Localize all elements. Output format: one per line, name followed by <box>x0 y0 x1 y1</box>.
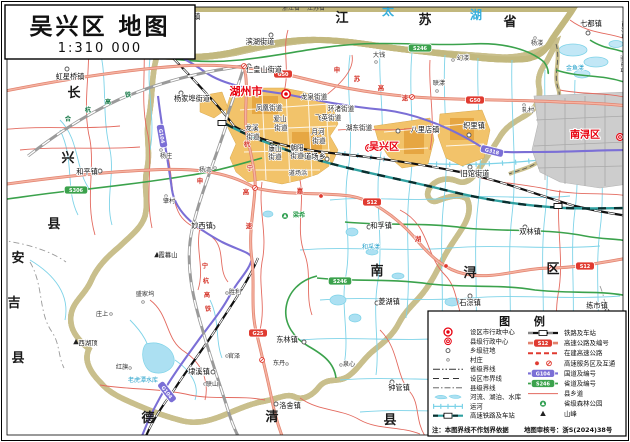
map-label-环渚街道: 环渚街道 <box>328 104 355 113</box>
map-label-官泽: 官泽 <box>228 352 240 360</box>
map-label-虹星桥镇: 虹星桥镇 <box>56 72 85 81</box>
map-label-街道: 街道 <box>274 123 288 132</box>
marker-village <box>110 313 113 316</box>
map-label-联漾: 联漾 <box>433 79 445 87</box>
road-badge-S12: S12 <box>363 198 382 206</box>
map-label-龙泉街道: 龙泉街道 <box>301 92 328 101</box>
map-label-石淙镇: 石淙镇 <box>459 298 481 307</box>
marker-interchange <box>260 358 265 363</box>
marker-town <box>274 402 278 406</box>
road-badge-G25: G25 <box>249 329 268 337</box>
marker-town <box>211 370 215 374</box>
map-label-省: 省 <box>502 14 516 30</box>
map-label-盛家坞: 盛家坞 <box>136 290 155 298</box>
legend-approval: 地图审核号：浙S(2024)38号 <box>524 425 613 434</box>
map-label-飞英街道: 飞英街道 <box>315 113 342 122</box>
map-label-八里店镇: 八里店镇 <box>411 125 440 134</box>
marker-village <box>129 367 132 370</box>
road-badge-S12: S12 <box>576 262 595 270</box>
map-label-杨溇: 杨溇 <box>531 39 543 47</box>
map-label-浔: 浔 <box>463 265 476 281</box>
map-label-清: 清 <box>265 409 278 425</box>
marker-interchange <box>253 186 258 191</box>
map-label-德: 德 <box>141 410 154 426</box>
marker-village <box>160 149 163 152</box>
map-label-西湖顶: 西湖顶 <box>78 338 98 347</box>
map-label-织里镇: 织里镇 <box>463 121 485 130</box>
map-label-速: 速 <box>402 93 409 102</box>
legend-label-county-border: 县级界线 <box>470 383 496 392</box>
legend-title: 图 例 <box>499 314 555 328</box>
map-label-申: 申 <box>197 176 203 185</box>
map-label-杭: 杭 <box>244 139 251 148</box>
legend-label-hwy-badge: 高速公路及编号 <box>564 338 609 347</box>
marker-village <box>523 104 526 107</box>
marker-city <box>282 90 290 98</box>
map-label-红旗: 红旗 <box>116 363 128 371</box>
map-title: 吴兴区 地图 <box>29 14 170 40</box>
map-label-湖: 湖 <box>415 234 422 243</box>
map-label-苏: 苏 <box>354 74 361 83</box>
map-label-苏: 苏 <box>418 12 431 28</box>
map-label-南: 南 <box>370 263 383 279</box>
map-label-街道: 街道 <box>268 152 282 161</box>
legend-label-service-ic: 高速服务区及互通 <box>564 358 616 367</box>
map-label-金鱼漾: 金鱼漾 <box>566 64 584 72</box>
map-label-长: 长 <box>67 85 81 101</box>
map-label-凤凰街道: 凤凰街道 <box>256 103 283 112</box>
legend-label-county-road: 县乡道 <box>564 389 584 398</box>
marker-town <box>586 31 590 35</box>
map-label-幻溇: 幻溇 <box>457 54 469 62</box>
map-label-杭: 杭 <box>203 277 210 285</box>
map-label-宁: 宁 <box>202 262 208 270</box>
map-label-湖: 湖 <box>470 7 482 22</box>
marker-town <box>65 67 69 71</box>
legend-sym-s-badge: S246 <box>528 380 558 388</box>
map-label-仁皇山街道: 仁皇山街道 <box>246 65 282 74</box>
marker-village <box>534 37 537 40</box>
marker-village <box>165 195 168 198</box>
map-label-联山: 联山 <box>206 380 218 388</box>
svg-text:G25: G25 <box>252 331 264 337</box>
map-label-杨家埠街道: 杨家埠街道 <box>174 94 210 103</box>
map-label-安: 安 <box>11 250 24 266</box>
marker-county <box>617 134 624 141</box>
map-scale: 1:310 000 <box>58 41 142 56</box>
map-label-道场浜: 道场浜 <box>289 169 308 177</box>
map-label-街道: 街道 <box>312 136 326 145</box>
svg-text:S12: S12 <box>580 264 591 270</box>
map-label-庄上: 庄上 <box>96 310 108 318</box>
map-label-朝阳: 朝阳 <box>290 143 303 152</box>
marker-village <box>142 301 145 304</box>
map-label-速: 速 <box>246 221 253 230</box>
map-label-练市镇: 练市镇 <box>586 301 608 310</box>
map-label-高: 高 <box>243 187 250 196</box>
map-label-铁: 铁 <box>205 305 212 313</box>
map-label-康山: 康山 <box>268 144 281 153</box>
marker-village <box>214 167 217 170</box>
legend-label-peak: 山峰 <box>564 409 577 418</box>
map-label-东林镇: 东林镇 <box>276 335 298 344</box>
map-label-嘉: 嘉 <box>296 186 304 195</box>
svg-text:S12: S12 <box>538 341 549 347</box>
road-badge-S246: S246 <box>408 44 431 52</box>
map-label-埭溪镇: 埭溪镇 <box>188 367 210 376</box>
map-label-爱山: 爱山 <box>273 114 286 123</box>
legend-label-canal: 运河 <box>470 402 483 410</box>
svg-text:G50: G50 <box>469 98 481 104</box>
map-label-龙溪: 龙溪 <box>245 123 259 132</box>
map-label-江: 江 <box>335 10 348 26</box>
map-label-老虎潭水库: 老虎潭水库 <box>128 376 158 384</box>
map-label-杭: 杭 <box>85 106 92 114</box>
legend-sym-county <box>445 338 452 345</box>
road-badge-G50: G50 <box>466 96 485 104</box>
road-badge-S306: S306 <box>64 186 87 194</box>
svg-text:S246: S246 <box>536 382 551 388</box>
marker-interchange <box>410 95 415 100</box>
legend-label-hsr: 高速铁路及车站 <box>470 411 515 420</box>
map-label-东丹: 东丹 <box>273 359 285 367</box>
legend-label-prov-border: 省级界线 <box>470 364 496 373</box>
map-label-胜利: 胜利 <box>229 288 241 296</box>
legend-label-county: 县级行政中心 <box>470 336 509 345</box>
map-label-街道: 街道 <box>290 151 304 160</box>
legend-label-village: 村庄 <box>470 355 483 364</box>
legend-note: 注：本图界线不作划界依据 <box>432 425 509 434</box>
svg-text:S246: S246 <box>333 279 348 285</box>
map-label-梁希: 梁希 <box>292 211 305 219</box>
marker-village <box>436 90 439 93</box>
map-label-肇村: 肇村 <box>163 197 175 205</box>
title-box: 吴兴区 地图 1:310 000 <box>5 5 195 59</box>
marker-town <box>396 129 400 133</box>
marker-village <box>286 363 289 366</box>
marker-service <box>319 194 323 198</box>
map-label-滨湖街道: 滨湖街道 <box>246 37 275 46</box>
marker-town <box>98 169 102 173</box>
svg-text:S246: S246 <box>413 46 428 52</box>
map-label-宁: 宁 <box>247 163 254 172</box>
marker-village <box>452 59 455 62</box>
map-label-霞幕山: 霞幕山 <box>158 250 177 259</box>
map-label-县: 县 <box>47 217 60 232</box>
road-badge-S246: S246 <box>328 277 351 285</box>
map-label-湖州市: 湖州市 <box>230 84 263 98</box>
marker-service <box>444 264 448 268</box>
map-label-区: 区 <box>546 262 559 277</box>
map-label-泉心: 泉心 <box>343 360 355 368</box>
map-label-菱湖镇: 菱湖镇 <box>378 297 400 306</box>
map-canvas: G50G50S12S12G25G318G318G104G104S306S246S… <box>0 0 630 442</box>
legend-label-township: 乡级驻地 <box>470 346 496 355</box>
map-label-和平镇: 和平镇 <box>76 167 98 176</box>
map-label-洛舍镇: 洛舍镇 <box>279 401 301 410</box>
svg-text:G104: G104 <box>536 371 551 377</box>
map-label-大钱: 大钱 <box>373 51 385 59</box>
marker-town <box>467 133 471 137</box>
map-label-高: 高 <box>378 83 385 92</box>
marker-park <box>282 213 289 220</box>
legend-label-rail: 铁路及车站 <box>564 328 597 337</box>
marker-station <box>554 204 562 209</box>
map-label-铁: 铁 <box>125 91 132 99</box>
legend-sym-g-badge: G104 <box>528 369 558 377</box>
map-label-七都镇: 七都镇 <box>580 19 602 28</box>
map-label-旧馆街道: 旧馆街道 <box>461 169 490 178</box>
map-label-吴兴区: 吴兴区 <box>369 140 399 153</box>
legend-label-city-border: 设区市界线 <box>470 374 503 383</box>
map-label-和孚漾: 和孚漾 <box>362 243 380 251</box>
svg-text:S12: S12 <box>367 200 378 206</box>
legend-label-water: 河流、湖泊、水库 <box>470 392 522 401</box>
legend-label-city: 设区市行政中心 <box>470 327 515 336</box>
map-label-月河: 月河 <box>311 128 325 136</box>
marker-town <box>302 340 306 344</box>
marker-station <box>218 121 226 126</box>
svg-text:S306: S306 <box>69 188 84 194</box>
map-label-杨湾: 杨湾 <box>199 166 211 174</box>
marker-village <box>375 61 378 64</box>
legend-label-s-badge: 省道及编号 <box>564 379 596 388</box>
map-label-高: 高 <box>105 98 111 106</box>
legend-sym-city <box>444 328 452 336</box>
map-label-吉: 吉 <box>7 296 20 311</box>
legend-sym-village <box>447 359 450 362</box>
map-label-杨庄: 杨庄 <box>160 152 172 160</box>
map-label-申: 申 <box>334 65 340 74</box>
map-label-县: 县 <box>383 413 396 428</box>
map-label-双林镇: 双林镇 <box>519 227 541 236</box>
map-label-南浔区: 南浔区 <box>570 128 600 141</box>
legend-sym-township <box>446 349 450 353</box>
map-label-道场乡: 道场乡 <box>304 152 326 161</box>
map-label-湖东街道: 湖东街道 <box>346 123 373 132</box>
legend-box: 图 例 设区市行政中心县级行政中心乡级驻地村庄省级界线设区市界线县级界线河流、湖… <box>428 311 626 436</box>
map-label-合: 合 <box>65 115 72 123</box>
legend-sym-park <box>540 400 547 407</box>
map-label-兴: 兴 <box>61 150 74 166</box>
legend-label-park: 省级森林公园 <box>564 399 602 408</box>
map-label-妙西镇: 妙西镇 <box>191 221 213 230</box>
legend-label-hwy-constr: 在建高速公路 <box>564 348 603 357</box>
map-page: G50G50S12S12G25G318G318G104G104S306S246S… <box>0 0 630 442</box>
legend-label-g-badge: 国道及编号 <box>564 368 596 377</box>
map-label-轧村: 轧村 <box>522 106 534 114</box>
map-label-县: 县 <box>11 351 24 366</box>
map-label-和孚镇: 和孚镇 <box>370 221 392 230</box>
map-label-钟管镇: 钟管镇 <box>388 383 410 392</box>
map-label-高: 高 <box>204 291 210 299</box>
